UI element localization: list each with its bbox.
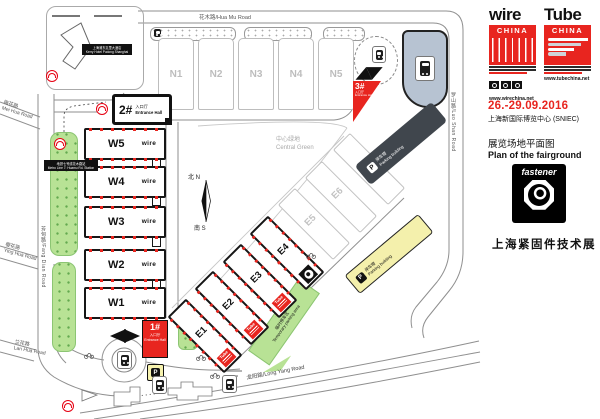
- plan-title-cn: 展览场地平面图: [488, 136, 600, 150]
- logo-smalltext-bar: [489, 66, 536, 68]
- fastener-show-title: 上海紧固件技术展: [492, 236, 596, 252]
- road-label-fang-dian: 芳甸路/Fang Dian Road: [40, 226, 47, 312]
- wire-china-logo: wire: [137, 291, 161, 315]
- bus-stop-icon: [415, 56, 435, 81]
- green-strip: [52, 262, 76, 352]
- wire-china-logo: wire: [137, 210, 161, 234]
- wire-logo-word: wire: [489, 6, 536, 23]
- plan-title-en: Plan of the fairground: [488, 150, 600, 160]
- metro-icon: [46, 70, 58, 82]
- hall-label: W1: [108, 297, 125, 309]
- entrance-hall-2-sign: 2# 入口厅 Entrance Hall: [112, 94, 172, 125]
- tube-logo-word: Tube: [544, 6, 591, 23]
- central-green-cn: 中心绿地: [276, 137, 314, 145]
- bicycle-icon: [306, 252, 316, 259]
- event-date: 26.-29.09.2016: [488, 100, 600, 112]
- logo-smalltext-bar: [544, 66, 591, 68]
- tube-logo-box: CHINA: [544, 25, 591, 65]
- hall-n2: N2: [198, 38, 234, 110]
- tube-url: www.tubechina.net: [544, 76, 591, 82]
- wire-logo-china: CHINA: [489, 25, 536, 35]
- event-venue: 上海新国际博览中心 (SNIEC): [488, 114, 600, 124]
- kerry-hotel-en: Kerry Hotel Pudong Shanghai: [83, 50, 131, 54]
- bicycle-icon: [196, 354, 206, 361]
- parking-p-icon: P: [366, 161, 379, 174]
- hall-label: E2: [221, 297, 237, 313]
- metro-icon: [62, 400, 74, 412]
- partner-icon: [512, 81, 522, 89]
- entrance-en: Entrance Hall: [135, 110, 162, 115]
- logo-smalltext-bar: [544, 69, 591, 71]
- bus-stop-icon: [222, 375, 237, 393]
- hall-n3: N3: [238, 38, 274, 110]
- metro-station-en: Metro Line 7: Huamu Rd. Station: [45, 166, 97, 170]
- compass-south-label: 南 S: [194, 223, 206, 232]
- bus-stop-icon: [152, 376, 167, 394]
- bus-icon: [420, 61, 430, 76]
- bus-icon: [121, 355, 129, 366]
- fastener-nut-icon: [524, 180, 554, 210]
- fastener-logo-word: fastener: [512, 167, 566, 178]
- metro-icon: [54, 138, 66, 150]
- hall-label: N2: [210, 69, 223, 80]
- wire-china-logo: wire: [137, 132, 161, 156]
- hall-connector: [152, 237, 161, 247]
- plan-title: 展览场地平面图 Plan of the fairground: [488, 136, 600, 160]
- hall-label: W3: [108, 216, 125, 228]
- hall-label: E3: [249, 270, 265, 286]
- entrance-number: 2#: [119, 104, 132, 116]
- fastener-logo: [298, 264, 318, 284]
- hall-label: W5: [108, 138, 125, 150]
- bus-icon: [154, 29, 161, 37]
- wire-loops-graphic: [492, 38, 533, 62]
- event-info: 26.-29.09.2016 上海新国际博览中心 (SNIEC): [488, 100, 600, 124]
- tube-china-logo-block: Tube CHINA www.tubechina.net: [544, 6, 591, 82]
- wire-logo-box: CHINA: [489, 25, 536, 65]
- partner-icons: [489, 76, 536, 94]
- hall-label: N5: [330, 69, 343, 80]
- logo-smalltext-bar: [489, 72, 527, 74]
- hall-label: E5: [303, 213, 319, 229]
- tube-arcs-graphic: [548, 38, 588, 61]
- compass-north-label: 北 N: [188, 172, 200, 181]
- fastener-logo-block: fastener: [512, 164, 566, 223]
- bus-icon: [376, 50, 383, 60]
- bus-stop-icon: [117, 351, 132, 369]
- logo-smalltext-bar: [489, 69, 536, 71]
- logo-smalltext-bar: [544, 72, 582, 74]
- metro-station-label: 地铁七号线花木路站 Metro Line 7: Huamu Rd. Statio…: [44, 160, 98, 171]
- metro-icon: [96, 103, 108, 115]
- fairground-plan-page: 花木路/Hua Mu Road N1 N2 N3 N4 N5 上海浦东嘉里大酒店…: [0, 0, 600, 419]
- hall-label: E4: [276, 242, 292, 258]
- bus-terminal: [402, 30, 448, 108]
- entrance-en: Entrance Hall: [143, 338, 167, 343]
- bus-icon: [156, 380, 164, 391]
- bicycle-icon: [210, 372, 220, 379]
- bicycle-icon: [84, 352, 94, 359]
- entrance-number: 1#: [143, 323, 167, 333]
- entrance-hall-1-sign: 1# 入口厅 Entrance Hall: [142, 320, 168, 358]
- hall-n4: N4: [278, 38, 314, 110]
- wire-china-logo: wire: [137, 253, 161, 277]
- bus-icon: [226, 379, 234, 390]
- hall-label: N3: [250, 69, 263, 80]
- hall-w1: W1 wire: [84, 287, 166, 319]
- compass-needle-icon: [200, 180, 212, 222]
- parking-p-icon: P: [355, 271, 368, 284]
- bus-stop-icon: [372, 46, 386, 63]
- hall-label: N1: [170, 69, 183, 80]
- wire-china-logo-block: wire CHINA www.wirechina.net: [489, 6, 536, 102]
- hall-label: W2: [108, 259, 125, 271]
- tube-logo-china: CHINA: [544, 25, 591, 35]
- central-green-label: 中心绿地 Central Green: [276, 137, 314, 153]
- green-strip: [50, 132, 78, 256]
- central-green-en: Central Green: [276, 145, 314, 153]
- hall-label: E6: [330, 186, 346, 202]
- hall-label: W4: [108, 176, 125, 188]
- wire-china-logo: wire: [137, 170, 161, 194]
- hall-label: E1: [194, 325, 210, 341]
- road-label-luo-shan: 罗山路/Luo Shan Road: [450, 92, 457, 172]
- hall-label: N4: [290, 69, 303, 80]
- road-label-hua-mu: 花木路/Hua Mu Road: [197, 13, 253, 21]
- kerry-hotel-label: 上海浦东嘉里大酒店 Kerry Hotel Pudong Shanghai: [82, 44, 132, 55]
- hall-w5: W5 wire: [84, 128, 166, 160]
- partner-icon: [489, 81, 499, 89]
- hall-w2: W2 wire: [84, 249, 166, 281]
- partner-icon: [501, 81, 511, 89]
- sculpture-icon: [110, 326, 140, 346]
- hall-n5: N5: [318, 38, 354, 110]
- hall-w3: W3 wire: [84, 206, 166, 238]
